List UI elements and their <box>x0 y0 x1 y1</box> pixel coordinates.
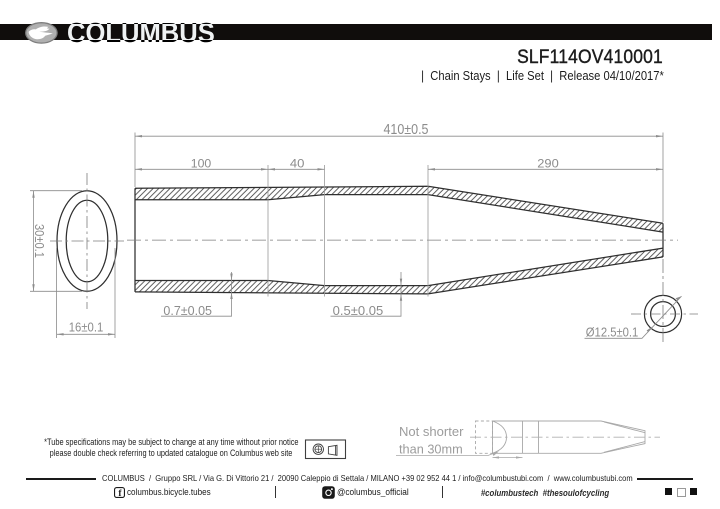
svg-text:f: f <box>118 489 122 498</box>
svg-text:40: 40 <box>290 156 305 170</box>
svg-text:Not shorter: Not shorter <box>399 424 464 439</box>
svg-text:100: 100 <box>191 156 212 170</box>
svg-text:30±0.1: 30±0.1 <box>32 224 46 258</box>
svg-text:16±0.1: 16±0.1 <box>69 319 104 334</box>
svg-text:0.7±0.05: 0.7±0.05 <box>163 303 212 318</box>
svg-text:Ø12.5±0.1: Ø12.5±0.1 <box>586 326 639 340</box>
svg-text:290: 290 <box>537 156 559 170</box>
svg-text:0.5±0.05: 0.5±0.05 <box>333 303 384 318</box>
svg-text:than 30mm: than 30mm <box>399 442 463 457</box>
svg-text:410±0.5: 410±0.5 <box>384 122 429 138</box>
